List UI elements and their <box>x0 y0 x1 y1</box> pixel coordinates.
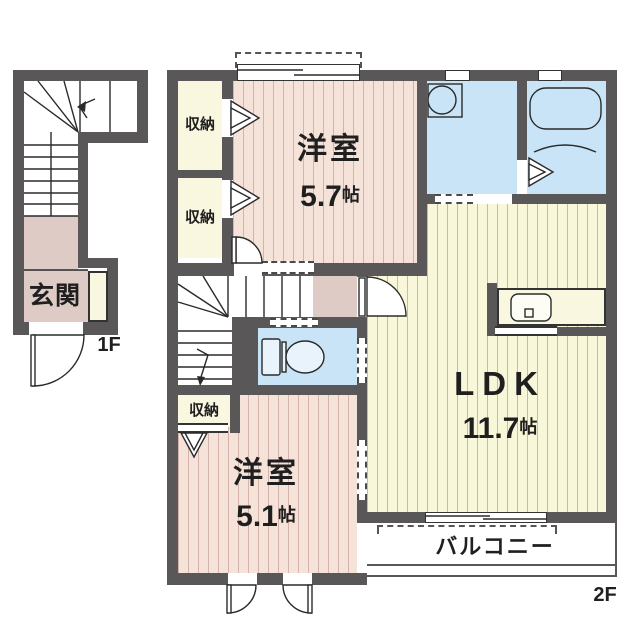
bedroom1-floor <box>233 81 417 263</box>
wall <box>606 70 617 523</box>
hall-ldk-door-opening <box>357 277 367 317</box>
bedroom2-size-unit: 帖 <box>278 506 296 526</box>
bedroom1-sliding-door <box>262 261 314 274</box>
bedroom2-door-opening-left <box>228 573 257 585</box>
bedroom2-size-value: 5.1 <box>236 500 278 533</box>
bedroom2-sliding-door <box>357 440 367 500</box>
storage3-label-text: 収納 <box>189 403 219 420</box>
bedroom1-name-label: 洋室 <box>240 131 420 167</box>
wall <box>78 143 88 268</box>
shoe-cabinet <box>88 271 108 322</box>
floor-tag-2f-text: 2F <box>593 584 616 606</box>
storage1-door-opening <box>222 99 233 137</box>
bedroom1-window <box>237 64 360 81</box>
washroom-window <box>445 70 470 81</box>
wall <box>167 385 242 395</box>
bedroom1-door-opening <box>234 263 262 276</box>
ldk-floor-upper <box>427 204 606 283</box>
ldk-name-text: LDK <box>454 366 546 402</box>
ldk-name-label: LDK <box>410 364 590 404</box>
storage3-label: 収納 <box>178 395 230 427</box>
entrance-label: 玄関 <box>22 282 88 312</box>
washroom-sliding-door-pocket <box>435 194 473 204</box>
entrance-label-text: 玄関 <box>29 283 81 311</box>
wall <box>167 70 178 585</box>
toilet-sliding-door <box>357 338 367 383</box>
wall <box>232 317 258 395</box>
bedroom1-size-label: 5.7帖 <box>240 178 420 214</box>
entrance-door-icon <box>31 335 84 386</box>
ldk-size-value: 11.7 <box>463 412 520 445</box>
wall <box>178 170 222 178</box>
washroom-floor <box>427 81 517 204</box>
storage1-label: 収納 <box>178 81 222 170</box>
wall <box>13 70 148 81</box>
bathroom-floor <box>527 81 606 204</box>
stairs-area-1f <box>24 81 137 132</box>
ldk-balcony-window <box>425 512 547 523</box>
wall <box>167 573 367 585</box>
kitchen-counter <box>497 288 606 326</box>
washroom-door-opening <box>473 194 512 204</box>
stair-landing-1f <box>24 216 78 270</box>
balcony-label-text: バルコニー <box>435 535 555 559</box>
bedroom2-size-label: 5.1帖 <box>186 498 346 534</box>
bathroom-window <box>538 70 562 81</box>
bedroom2-door-opening-right <box>283 573 312 585</box>
balcony-roof-dashed-line <box>377 525 557 534</box>
bedroom1-name-text: 洋室 <box>297 133 363 166</box>
balcony-label: バルコニー <box>400 534 590 560</box>
hall-floor <box>313 276 357 318</box>
storage2-door-opening <box>222 180 233 218</box>
bedroom2-french-door-icon <box>227 585 312 613</box>
bedroom2-name-text: 洋室 <box>233 457 299 490</box>
wall <box>230 395 240 433</box>
wall <box>232 385 367 395</box>
stairs-area-2f-lower <box>178 317 232 390</box>
wall <box>78 132 148 143</box>
storage2-label-text: 収納 <box>185 210 215 227</box>
toilet-sliding-door-top <box>270 318 318 327</box>
bedroom1-size-value: 5.7 <box>300 180 342 213</box>
entrance-door-opening <box>29 322 83 335</box>
ldk-size-unit: 帖 <box>519 418 537 438</box>
kitchen-counter-front <box>495 326 557 336</box>
toilet-room-floor <box>258 328 357 385</box>
floor-tag-1f: 1F <box>88 334 130 356</box>
floor-tag-1f-text: 1F <box>97 334 120 356</box>
kitchen-stub-wall <box>557 327 606 336</box>
ldk-size-label: 11.7帖 <box>410 410 590 446</box>
floor-plan: 玄関 1F <box>0 0 640 640</box>
stairs-area-1f-lower <box>24 132 78 216</box>
balcony-rail-line <box>367 564 615 566</box>
storage1-label-text: 収納 <box>185 117 215 134</box>
bedroom2-name-label: 洋室 <box>186 455 346 491</box>
storage2-label: 収納 <box>178 178 222 258</box>
floor-tag-2f: 2F <box>584 584 626 606</box>
bedroom1-size-unit: 帖 <box>342 186 360 206</box>
wall <box>517 81 527 160</box>
stairs-area-2f-upper <box>178 276 313 317</box>
